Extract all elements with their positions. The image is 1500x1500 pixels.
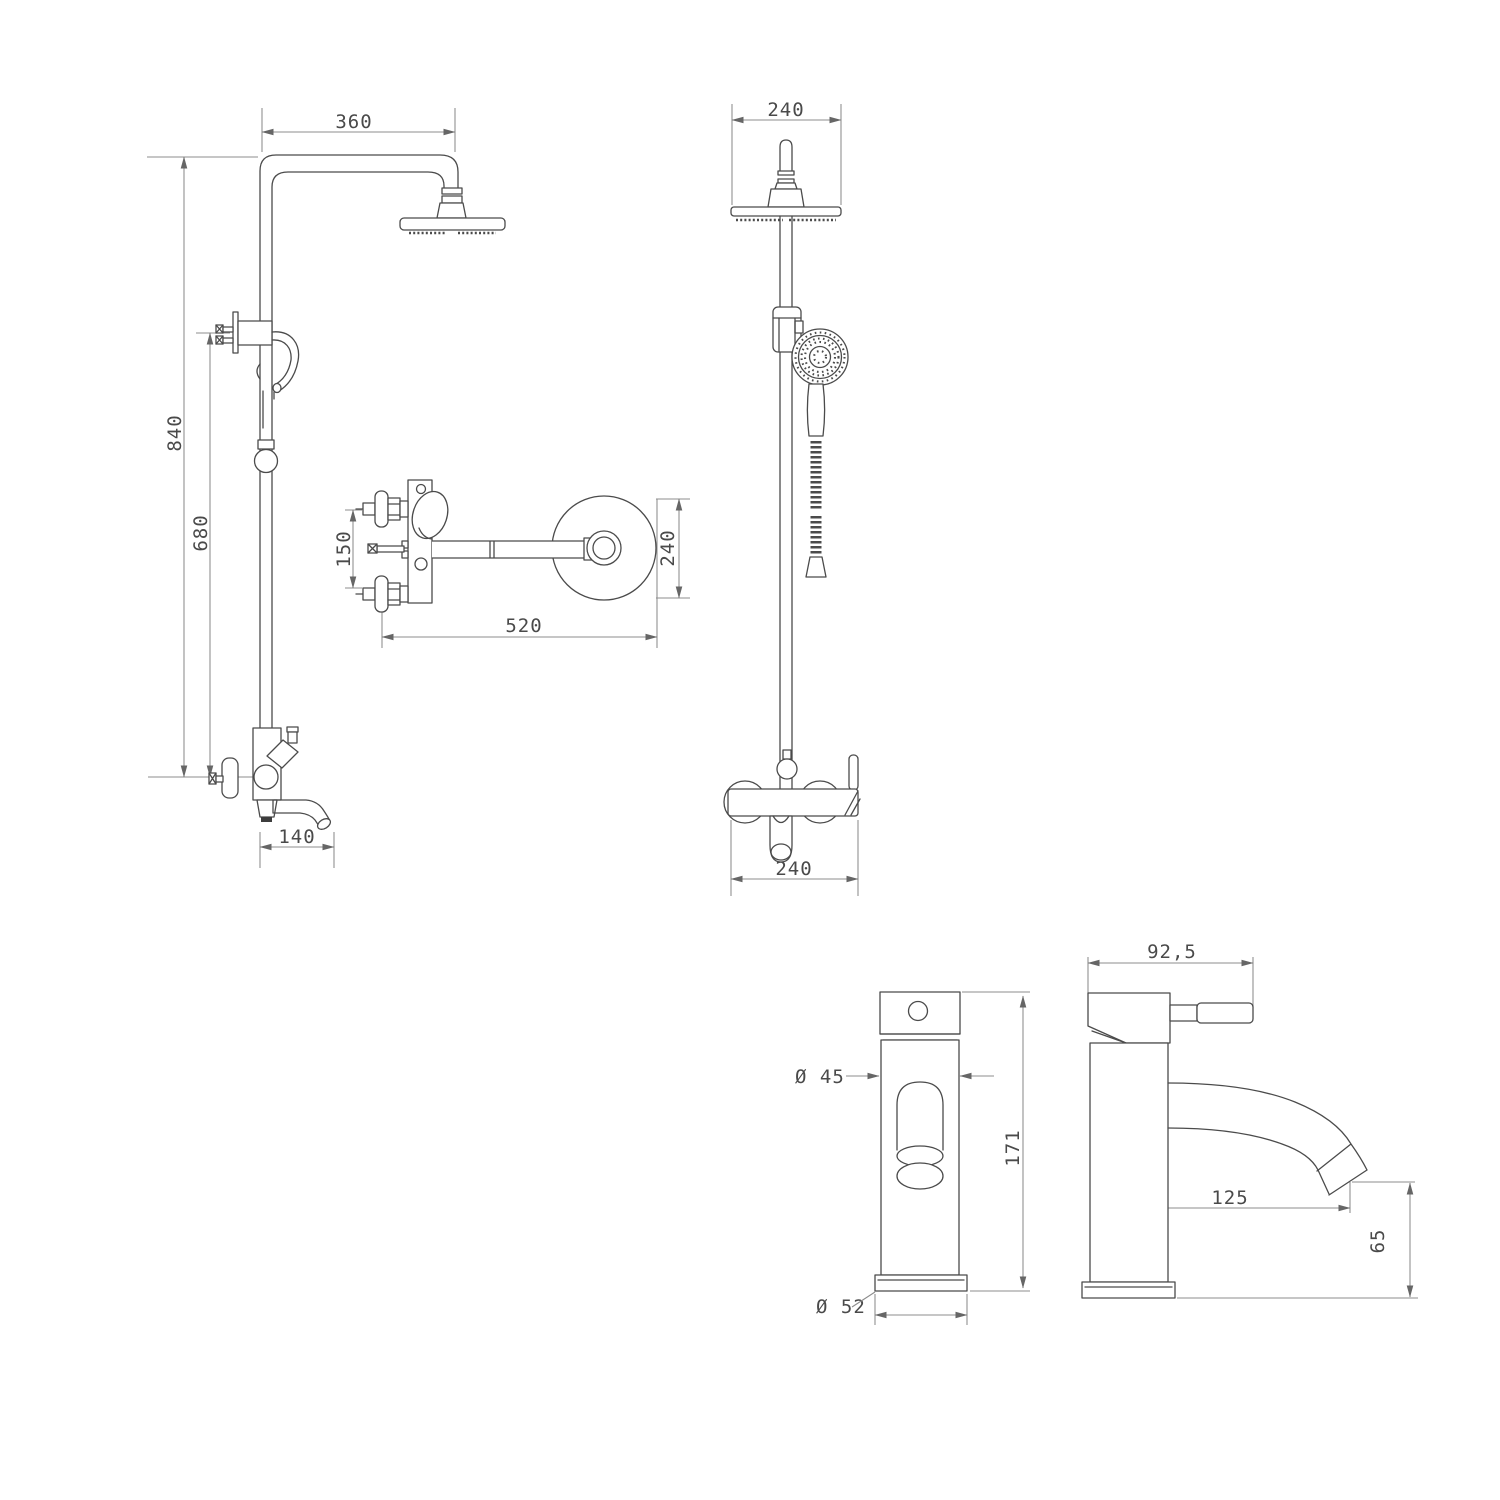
view-shower-column-front: 240 240	[724, 99, 860, 896]
dim-label-92-5: 92,5	[1147, 941, 1197, 963]
dim-base-diameter: Ø 52	[816, 1292, 967, 1325]
dim-arm-width: 360	[262, 108, 455, 152]
mixer-lever-front	[849, 755, 858, 790]
riser-pipe-front	[780, 216, 792, 789]
inlet-fitting-top	[356, 491, 408, 527]
dim-label-150: 150	[333, 530, 355, 567]
hand-shower-cradle-side	[257, 332, 299, 428]
faucet-front-body	[875, 992, 967, 1291]
bath-mixer-front	[724, 750, 860, 862]
dim-label-240-mid: 240	[657, 529, 679, 566]
dim-spout-reach: 140	[260, 826, 334, 868]
view-basin-faucet-side: 92,5 125 65	[1082, 941, 1418, 1298]
dim-label-d52: Ø 52	[816, 1296, 866, 1318]
riser-pipe-side	[260, 155, 458, 728]
handle-head-front	[880, 992, 960, 1034]
dim-mixer-width: 240	[731, 820, 858, 896]
view-shower-column-side: 840 680 360 140	[147, 108, 505, 868]
slider-knob-side	[255, 440, 278, 473]
dim-lower-height: 680	[190, 333, 230, 777]
dim-inlet-spacing: 150	[333, 510, 362, 588]
dim-label-171: 171	[1002, 1129, 1024, 1166]
shower-arm-side	[432, 531, 621, 565]
dim-label-360: 360	[335, 111, 372, 133]
dim-overall-height: 840	[147, 157, 258, 777]
view-basin-faucet-front: 171 Ø 45 Ø 52	[795, 992, 1030, 1325]
inlet-fitting-bottom	[356, 576, 408, 612]
diverter-knob-front	[777, 759, 797, 779]
mixer-knob-side	[254, 765, 278, 789]
hand-shower-handle	[808, 384, 825, 436]
lever-neck	[1170, 1005, 1197, 1021]
base-flange-side	[1082, 1282, 1175, 1298]
dim-height-171: 171	[962, 992, 1030, 1291]
dim-head-diameter: 240	[656, 499, 690, 598]
arm-wall-bolt	[368, 544, 404, 553]
base-flange-front	[875, 1275, 967, 1291]
bath-mixer-side	[209, 727, 332, 832]
view-wall-mixer-side: 150 520 240	[333, 480, 690, 648]
aerator-side	[261, 817, 272, 822]
spout-side	[1168, 1083, 1367, 1195]
rain-shower-head-front	[731, 140, 841, 220]
dim-label-520: 520	[505, 615, 542, 637]
technical-drawing-page: 840 680 360 140	[0, 0, 1500, 1500]
dim-label-680: 680	[190, 514, 212, 551]
dim-label-140: 140	[278, 826, 315, 848]
faucet-side-body	[1082, 993, 1367, 1298]
hand-shower-front	[792, 329, 848, 577]
drawing-canvas: 840 680 360 140	[0, 0, 1500, 1500]
dim-label-240-top: 240	[767, 99, 804, 121]
wall-bracket-side	[216, 312, 272, 353]
dim-label-65: 65	[1367, 1229, 1389, 1254]
hose-connector	[806, 557, 826, 577]
lever-grip	[1197, 1003, 1253, 1023]
rain-shower-head-side	[400, 188, 505, 233]
dim-label-840: 840	[164, 414, 186, 451]
dim-label-125: 125	[1211, 1187, 1248, 1209]
handle-head-side	[1088, 993, 1170, 1043]
dim-label-d45: Ø 45	[795, 1066, 845, 1088]
